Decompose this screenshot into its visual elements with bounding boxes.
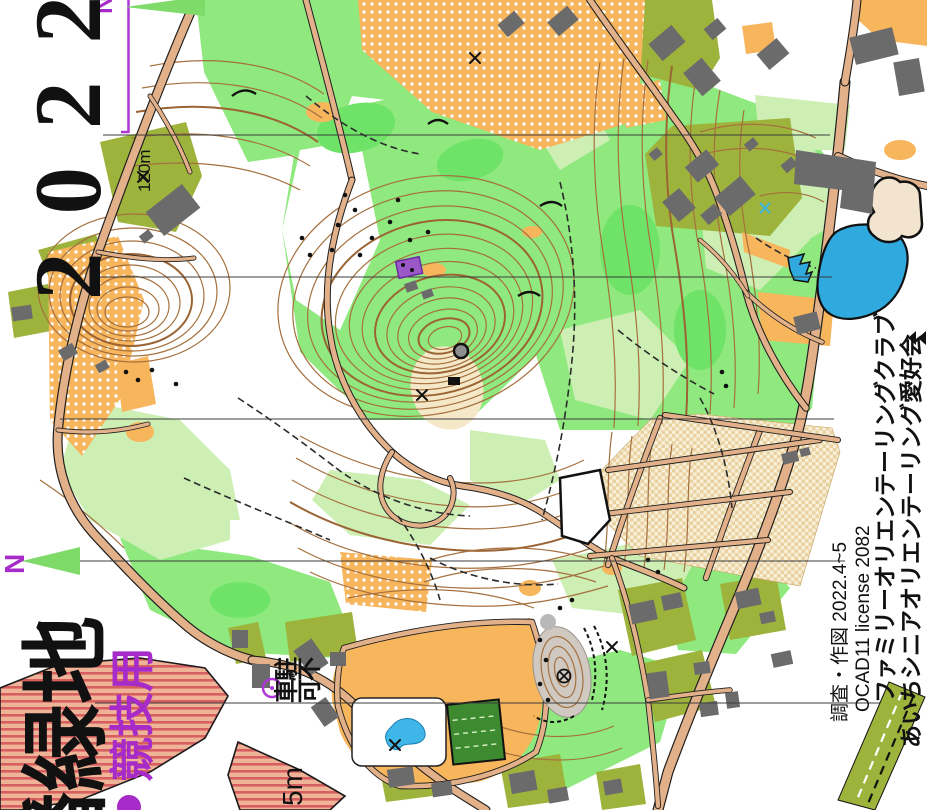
no-parking-char-4: 可 [297, 679, 324, 703]
canopy-building [868, 178, 922, 243]
club-line-2: あいちシニアオリエンテーリング愛好会 [898, 334, 924, 748]
club-line-1: ファミリーオリエンテーリングクラブ [872, 312, 898, 703]
orienteering-map-screenshot: 120m N N 2022 幡緑地 競技用 5m 調査・作図 2022.4~5 … [0, 0, 927, 810]
fenced-compound [560, 470, 610, 544]
north-arrow-top-triangle [125, 0, 205, 16]
subtitle-logo-disc [117, 795, 141, 810]
credit-line-2: OCAD11 license 2082 [853, 525, 874, 712]
pool-area [352, 698, 446, 766]
sports-court [447, 699, 505, 764]
north-letter-left: N [0, 554, 30, 574]
map-year: 2022 [15, 0, 121, 300]
no-parking-char-3: 不 [297, 657, 324, 681]
scale-bar-label: 120m [135, 149, 154, 192]
no-parking-label: 駐 車 不 可 [273, 657, 324, 703]
north-arrow-left: N [0, 547, 80, 575]
map-canvas: 120m N N 2022 幡緑地 競技用 5m 調査・作図 2022.4~5 … [0, 0, 927, 810]
north-arrow-left-triangle [22, 547, 80, 575]
contour-interval-label: 5m [277, 767, 308, 806]
monument-circle [540, 614, 556, 630]
park-title: 幡緑地 [20, 616, 117, 810]
subtitle-competition: 競技用 [108, 647, 158, 782]
credit-line-1: 調査・作図 2022.4~5 [829, 542, 851, 722]
